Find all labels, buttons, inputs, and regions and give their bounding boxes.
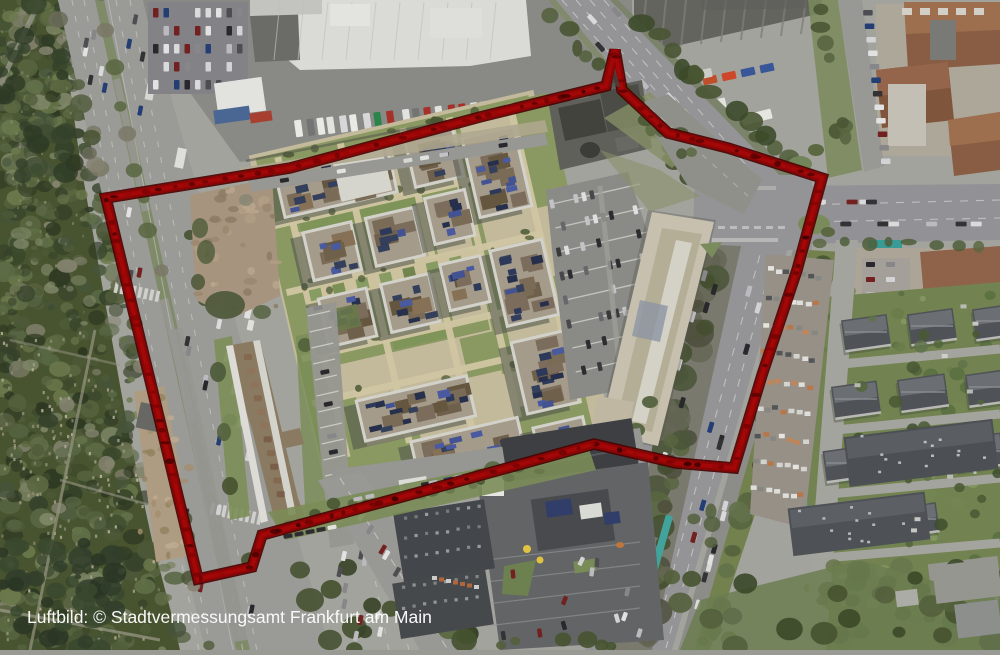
svg-text:Luftbild: © Stadtvermessungsam: Luftbild: © Stadtvermessungsamt Frankfur…	[27, 607, 432, 627]
